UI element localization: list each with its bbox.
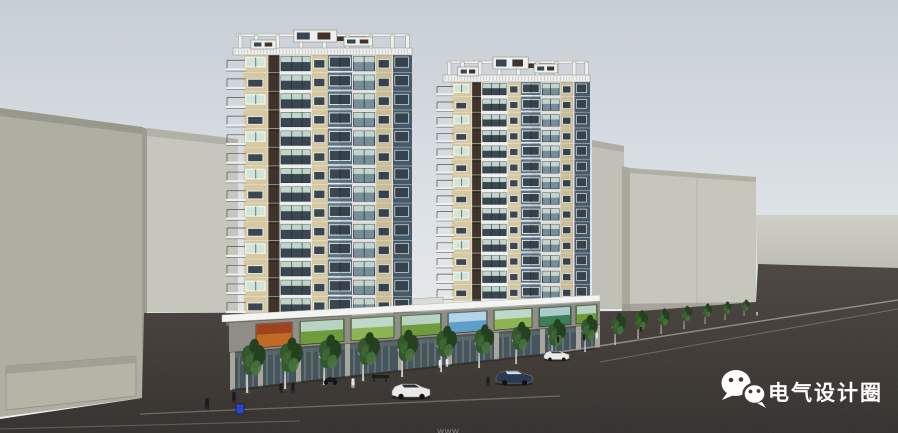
left-block-2 (147, 128, 238, 312)
rendering-frame: 电气设计圈 www (0, 0, 898, 433)
tower-left (226, 30, 412, 316)
left-block (0, 108, 147, 417)
scene-layers (0, 0, 898, 433)
right-block-small (592, 140, 624, 309)
footer-partial-text: www (437, 427, 459, 433)
watermark-text: 电气设计圈 (768, 381, 883, 405)
tower-right (436, 57, 590, 301)
right-block (622, 166, 756, 312)
ground-band (756, 215, 898, 270)
architectural-rendering-scene: 电气设计圈 www (0, 0, 898, 433)
